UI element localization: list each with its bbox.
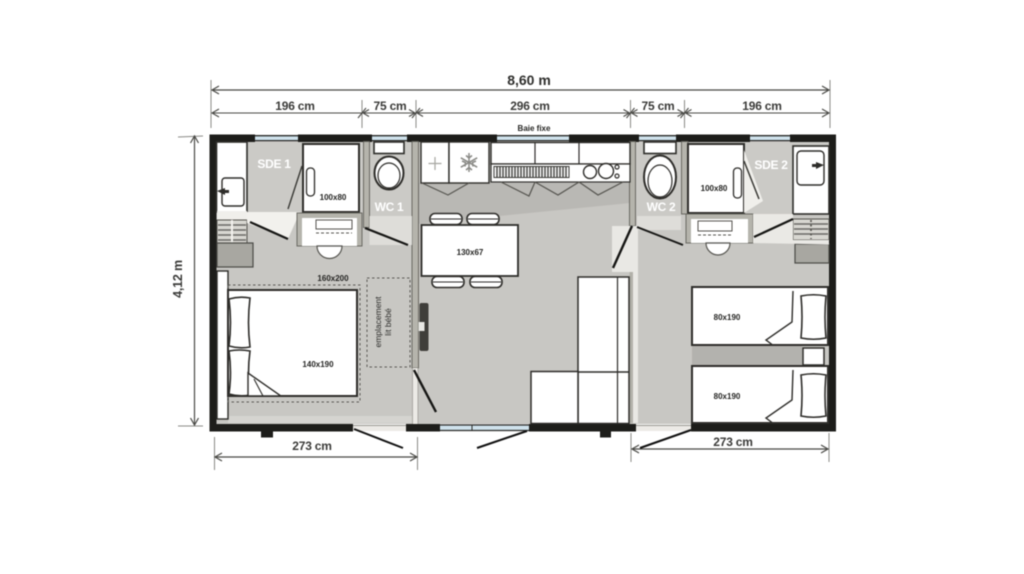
- svg-text:130x67: 130x67: [457, 248, 484, 257]
- svg-text:75 cm: 75 cm: [373, 99, 406, 113]
- svg-text:SDE 1: SDE 1: [257, 157, 291, 171]
- svg-text:SDE 2: SDE 2: [754, 158, 788, 172]
- svg-text:196 cm: 196 cm: [742, 99, 782, 113]
- svg-text:8,60 m: 8,60 m: [507, 72, 551, 88]
- svg-text:296 cm: 296 cm: [510, 99, 550, 113]
- svg-text:80x190: 80x190: [714, 313, 741, 322]
- svg-text:140x190: 140x190: [302, 360, 334, 369]
- svg-text:lit bébé: lit bébé: [383, 308, 393, 336]
- svg-text:100x80: 100x80: [701, 184, 728, 193]
- svg-text:160x200: 160x200: [317, 274, 349, 283]
- svg-text:100x80: 100x80: [320, 193, 347, 202]
- svg-text:WC 1: WC 1: [375, 200, 404, 214]
- svg-text:WC 2: WC 2: [647, 200, 676, 214]
- svg-text:Baie fixe: Baie fixe: [518, 124, 551, 133]
- svg-text:75 cm: 75 cm: [641, 99, 674, 113]
- svg-text:273 cm: 273 cm: [292, 439, 332, 453]
- svg-text:emplacement: emplacement: [373, 296, 383, 348]
- svg-text:196 cm: 196 cm: [275, 99, 315, 113]
- svg-text:4,12 m: 4,12 m: [171, 260, 185, 298]
- svg-text:80x190: 80x190: [714, 392, 741, 401]
- svg-text:273 cm: 273 cm: [713, 435, 753, 449]
